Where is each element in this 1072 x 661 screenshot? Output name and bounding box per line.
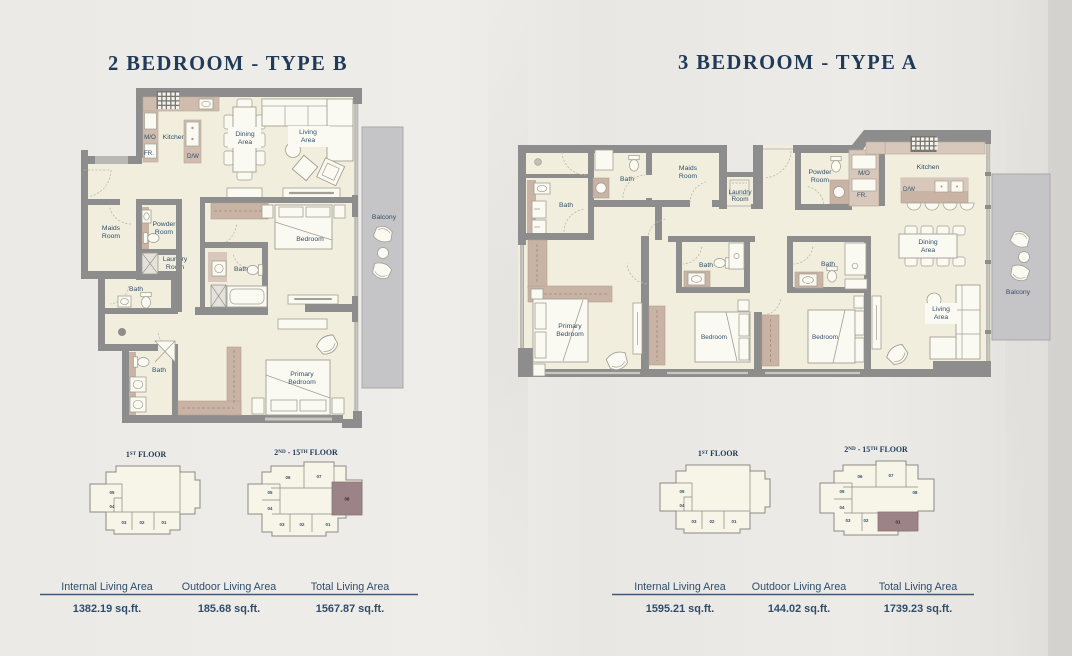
svg-text:Bath: Bath xyxy=(699,262,713,269)
svg-text:01: 01 xyxy=(896,520,901,525)
svg-text:Laundry: Laundry xyxy=(163,256,188,263)
svg-text:Maids: Maids xyxy=(102,225,121,232)
svg-text:07: 07 xyxy=(889,473,894,478)
svg-text:Dining: Dining xyxy=(235,131,254,138)
svg-text:08: 08 xyxy=(913,490,918,495)
svg-text:03: 03 xyxy=(692,519,697,524)
svg-text:06: 06 xyxy=(858,474,863,479)
svg-text:M/O: M/O xyxy=(144,134,156,141)
svg-text:Kitchen: Kitchen xyxy=(917,164,940,171)
svg-text:1739.23 sq.ft.: 1739.23 sq.ft. xyxy=(884,603,952,615)
svg-text:Room: Room xyxy=(731,196,748,203)
svg-text:2 BEDROOM - TYPE B: 2 BEDROOM - TYPE B xyxy=(108,53,348,75)
svg-text:03: 03 xyxy=(280,522,285,527)
svg-text:Bath: Bath xyxy=(821,261,835,268)
svg-text:04: 04 xyxy=(268,506,273,511)
svg-text:01: 01 xyxy=(732,519,737,524)
svg-text:185.68 sq.ft.: 185.68 sq.ft. xyxy=(198,603,260,615)
svg-text:03: 03 xyxy=(846,518,851,523)
svg-text:Laundry: Laundry xyxy=(728,189,752,196)
svg-text:Kitchen: Kitchen xyxy=(163,134,186,141)
svg-text:01: 01 xyxy=(162,520,167,525)
svg-text:04: 04 xyxy=(680,503,685,508)
svg-text:D/W: D/W xyxy=(903,186,915,193)
svg-text:Bath: Bath xyxy=(152,367,166,374)
svg-text:Primary: Primary xyxy=(290,371,314,378)
svg-text:03: 03 xyxy=(122,520,127,525)
svg-text:Bedroom: Bedroom xyxy=(556,331,584,338)
svg-text:Bath: Bath xyxy=(234,266,248,273)
svg-text:3 BEDROOM - TYPE A: 3 BEDROOM - TYPE A xyxy=(678,52,918,74)
svg-text:Outdoor Living Area: Outdoor Living Area xyxy=(182,581,277,593)
svg-text:06: 06 xyxy=(286,475,291,480)
svg-text:Bath: Bath xyxy=(559,202,573,209)
svg-text:Internal Living Area: Internal Living Area xyxy=(634,581,726,593)
svg-text:01: 01 xyxy=(326,522,331,527)
svg-text:Room: Room xyxy=(155,229,173,236)
svg-text:05: 05 xyxy=(110,490,115,495)
svg-text:Powder: Powder xyxy=(808,169,832,176)
svg-text:Living: Living xyxy=(299,129,317,136)
svg-text:07: 07 xyxy=(317,474,322,479)
svg-text:Bath: Bath xyxy=(129,286,143,293)
svg-text:Primary: Primary xyxy=(558,323,582,330)
svg-text:Total Living Area: Total Living Area xyxy=(311,581,389,593)
svg-text:05: 05 xyxy=(268,490,273,495)
svg-text:FR.: FR. xyxy=(857,192,867,199)
svg-text:Area: Area xyxy=(934,314,949,321)
svg-text:Balcony: Balcony xyxy=(372,214,397,221)
svg-text:Dining: Dining xyxy=(918,239,937,246)
svg-text:Bedroom: Bedroom xyxy=(296,236,324,243)
svg-text:1595.21 sq.ft.: 1595.21 sq.ft. xyxy=(646,603,714,615)
svg-text:Internal Living Area: Internal Living Area xyxy=(61,581,153,593)
svg-text:Area: Area xyxy=(238,139,253,146)
svg-text:Bedroom: Bedroom xyxy=(701,334,727,341)
svg-text:144.02 sq.ft.: 144.02 sq.ft. xyxy=(768,603,830,615)
svg-text:Powder: Powder xyxy=(152,221,176,228)
svg-text:Balcony: Balcony xyxy=(1006,289,1031,296)
svg-text:05: 05 xyxy=(680,489,685,494)
svg-text:02: 02 xyxy=(140,520,145,525)
svg-text:Bedroom: Bedroom xyxy=(288,379,316,386)
svg-text:1567.87 sq.ft.: 1567.87 sq.ft. xyxy=(316,603,384,615)
svg-text:08: 08 xyxy=(345,497,350,502)
svg-text:Maids: Maids xyxy=(679,165,698,172)
svg-text:04: 04 xyxy=(840,505,845,510)
svg-text:Area: Area xyxy=(921,247,936,254)
svg-text:Outdoor Living Area: Outdoor Living Area xyxy=(752,581,847,593)
svg-text:Living: Living xyxy=(932,306,950,313)
svg-text:Room: Room xyxy=(811,177,829,184)
svg-text:02: 02 xyxy=(710,519,715,524)
svg-text:1382.19 sq.ft.: 1382.19 sq.ft. xyxy=(73,603,141,615)
svg-text:Total Living Area: Total Living Area xyxy=(879,581,957,593)
svg-text:02: 02 xyxy=(864,518,869,523)
svg-text:Room: Room xyxy=(679,173,697,180)
svg-text:05: 05 xyxy=(840,489,845,494)
svg-text:04: 04 xyxy=(110,504,115,509)
svg-text:M/O: M/O xyxy=(858,170,870,177)
svg-text:FR.: FR. xyxy=(144,150,154,157)
svg-text:Area: Area xyxy=(301,137,316,144)
svg-text:02: 02 xyxy=(300,522,305,527)
svg-text:D/W: D/W xyxy=(187,153,199,160)
svg-text:Room: Room xyxy=(102,233,120,240)
svg-text:Bedroom: Bedroom xyxy=(812,334,838,341)
